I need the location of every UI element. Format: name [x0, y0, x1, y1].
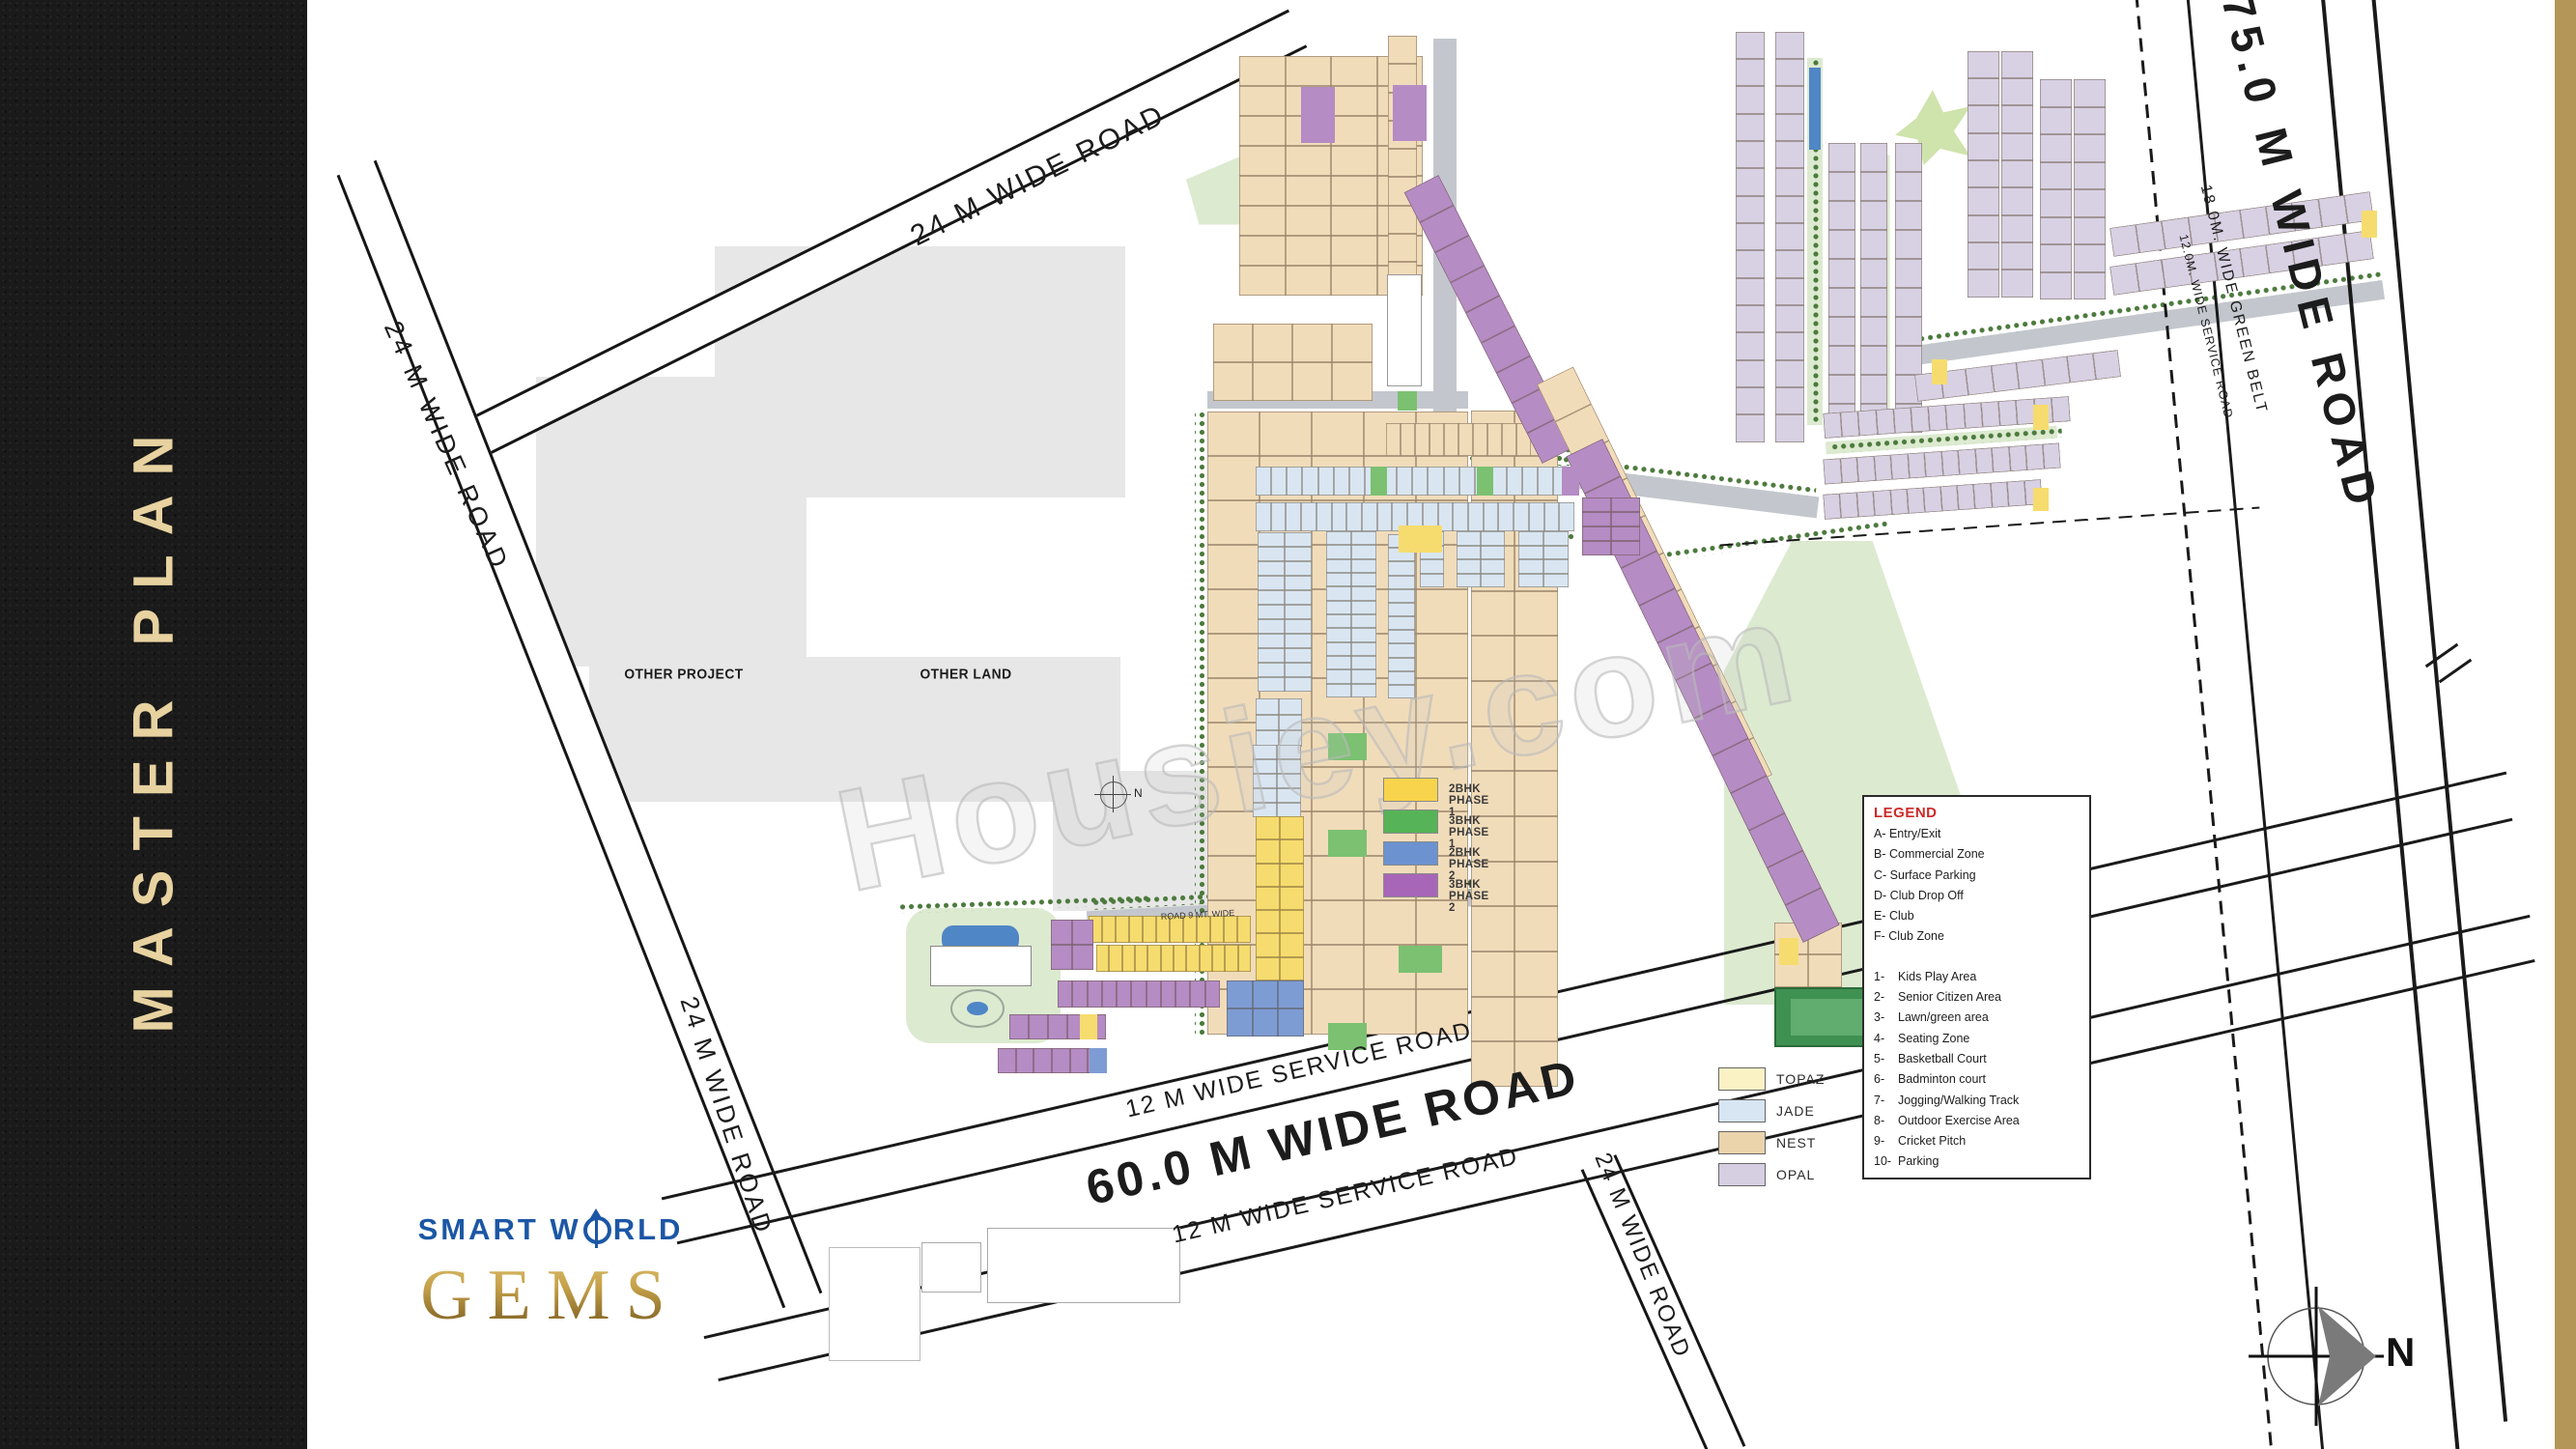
- plot-cell: [2040, 189, 2072, 217]
- smart-world-text-right: RLD: [613, 1212, 684, 1247]
- plot-cell: [1514, 997, 1558, 1042]
- plot-cell: [1207, 412, 1260, 456]
- plot-cell: [1210, 916, 1224, 943]
- plot-cell: [1420, 574, 1444, 588]
- plot-cell: [2016, 399, 2035, 425]
- page-title: MASTER PLAN: [122, 416, 186, 1034]
- plot-cell: [1736, 414, 1765, 441]
- plot-cell: [2067, 353, 2096, 383]
- plot-cell: [2042, 442, 2060, 469]
- phase-1-3bhk-swatch: [1383, 810, 1438, 834]
- plot-cell: [1736, 360, 1765, 387]
- opal-label: OPAL: [1776, 1167, 1815, 1182]
- plot-cell: [1285, 648, 1312, 663]
- plot-cell: [1346, 502, 1362, 531]
- plot-cell: [1058, 980, 1072, 1008]
- plot-cell: [1122, 945, 1135, 972]
- mini-compass-ring: [1100, 781, 1127, 809]
- plot-cell: [1326, 545, 1351, 558]
- plot-cell: [1147, 945, 1160, 972]
- plot-cell: [1331, 86, 1377, 116]
- legend-item: 8- Outdoor Exercise Area: [1874, 1111, 2089, 1131]
- plot-cell: [1286, 56, 1332, 86]
- plot-cluster: [1227, 980, 1304, 1037]
- plot-cell: [1457, 531, 1481, 546]
- plot-cell: [1205, 980, 1220, 1008]
- plot-cell: [2040, 244, 2072, 272]
- plot-cell: [1146, 980, 1161, 1008]
- plot-cell: [1998, 400, 2018, 426]
- plot-cell: [2074, 272, 2106, 300]
- plot-cell: [1923, 486, 1941, 512]
- legend-box: LEGEND A- Entry/ExitB- Commercial ZoneC-…: [1862, 795, 2091, 1179]
- map-area: [1301, 87, 1335, 143]
- plot-cell: [1351, 531, 1376, 545]
- plot-cell: [1280, 933, 1304, 956]
- plot-cell: [1736, 305, 1765, 332]
- plot-cell: [1907, 452, 1925, 478]
- map-line: [2439, 658, 2472, 682]
- plot-cell: [1967, 160, 1999, 187]
- plot-cell: [1775, 141, 1804, 168]
- map-area: [1080, 1014, 1097, 1039]
- plot-cell: [1285, 576, 1312, 590]
- plot-cell: [1416, 589, 1468, 634]
- plot-cluster: [1457, 531, 1505, 587]
- plot-cell: [2074, 217, 2106, 245]
- legend-item: 5- Basketball Court: [1874, 1049, 2089, 1069]
- plot-cluster: [1256, 467, 1570, 496]
- plot-cell: [1207, 500, 1260, 545]
- phase-2-2bhk-swatch: [1383, 841, 1438, 866]
- plot-cell: [1459, 467, 1475, 496]
- map-area: [1477, 467, 1493, 496]
- plot-cell: [1502, 423, 1516, 456]
- plot-cell: [1331, 206, 1377, 236]
- plot-cell: [1207, 634, 1260, 678]
- plot-cell: [1991, 446, 2009, 472]
- plot-cell: [1895, 288, 1922, 317]
- plot-cluster: [1096, 945, 1251, 972]
- plot-cell: [1430, 423, 1444, 456]
- gems-wordmark: GEMS: [406, 1255, 695, 1337]
- map-line: [2425, 642, 2458, 667]
- plot-cell: [1514, 952, 1558, 997]
- plot-cell: [2001, 78, 2033, 105]
- map-area: [1562, 467, 1579, 496]
- plot-cluster: [2001, 51, 2033, 298]
- plot-cell: [1471, 997, 1514, 1042]
- plot-cell: [1736, 387, 1765, 414]
- phase-1-2bhk-label: 2BHK PHASE 1: [1449, 783, 1489, 818]
- jade-swatch: [1718, 1099, 1766, 1122]
- plot-cell: [1286, 206, 1332, 236]
- other-project-label: OTHER PROJECT: [624, 667, 743, 683]
- plot-cell: [1481, 574, 1505, 588]
- plot-cell: [1253, 362, 1292, 401]
- plot-cell: [1498, 502, 1514, 531]
- plot-cell: [1213, 362, 1253, 401]
- plot-cell: [1072, 945, 1093, 970]
- plot-cell: [2001, 215, 2033, 242]
- plot-cell: [1351, 545, 1376, 558]
- plot-cell: [1911, 406, 1930, 432]
- plot-cell: [1736, 332, 1765, 359]
- plot-cell: [1207, 545, 1260, 589]
- plot-cell: [1828, 143, 1855, 172]
- plot-cell: [1420, 559, 1444, 574]
- plot-cell: [1828, 375, 1855, 404]
- plot-cell: [1253, 324, 1292, 362]
- plot-cell: [1088, 980, 1102, 1008]
- plot-cell: [1860, 288, 1887, 317]
- plot-cell: [1286, 176, 1332, 206]
- plot-cell: [1582, 497, 1611, 512]
- plot-cell: [1775, 250, 1804, 277]
- legend-item: 3- Lawn/green area: [1874, 1008, 2089, 1028]
- plot-cell: [1428, 467, 1443, 496]
- map-area: [967, 1002, 988, 1015]
- plot-cell: [1227, 1009, 1253, 1037]
- plot-cell: [1207, 456, 1260, 500]
- plot-cell: [1481, 531, 1505, 546]
- legend-item: 4- Seating Zone: [1874, 1029, 2089, 1049]
- plot-cell: [1991, 362, 2020, 392]
- plot-cell: [1238, 945, 1251, 972]
- legend-item: B- Commercial Zone: [1874, 844, 2089, 865]
- plot-cell: [1225, 945, 1237, 972]
- plot-cell: [1364, 989, 1416, 1034]
- plot-cell: [1253, 1009, 1279, 1037]
- plot-cell: [1285, 561, 1312, 576]
- plot-cell: [1332, 362, 1372, 401]
- plot-cell: [1285, 590, 1312, 605]
- plot-cell: [1860, 346, 1887, 375]
- plot-cell: [1775, 196, 1804, 223]
- plot-cell: [1227, 980, 1253, 1009]
- plot-cell: [1973, 483, 1992, 509]
- plot-cell: [1967, 51, 1999, 78]
- plot-cell: [1856, 491, 1875, 517]
- plot-cell: [1736, 250, 1765, 277]
- phase-2-3bhk-label: 3BHK PHASE 2: [1449, 879, 1489, 914]
- plot-cell: [1543, 574, 1569, 588]
- plot-cell: [1468, 502, 1484, 531]
- plot-cell: [998, 1048, 1016, 1073]
- legend-item: 7- Jogging/Walking Track: [1874, 1091, 2089, 1111]
- plot-cell: [1611, 541, 1640, 555]
- compass-graphic: [2229, 1269, 2403, 1443]
- plot-cell: [1397, 467, 1412, 496]
- plot-cell: [1326, 573, 1351, 586]
- plot-cell: [1386, 423, 1401, 456]
- plot-cell: [1873, 455, 1891, 481]
- plot-cell: [1351, 573, 1376, 586]
- plot-cell: [1239, 116, 1286, 146]
- plot-cell: [1258, 648, 1285, 663]
- plot-cell: [1895, 230, 1922, 259]
- phase-1-2bhk-swatch: [1383, 778, 1438, 802]
- legend-item: 10- Parking: [1874, 1151, 2089, 1172]
- plot-cell: [1388, 603, 1415, 616]
- opal-swatch: [1718, 1163, 1766, 1186]
- plot-cell: [1280, 839, 1304, 863]
- plot-cell: [1857, 410, 1877, 436]
- plot-cell: [1285, 532, 1312, 547]
- plot-cluster: [2074, 79, 2106, 299]
- plot-cluster: [1518, 531, 1569, 587]
- plot-cell: [1823, 412, 1842, 439]
- plot-cell: [1828, 172, 1855, 201]
- side-panel: MASTER PLAN: [0, 0, 307, 1449]
- plot-cell: [1775, 168, 1804, 195]
- plot-cell: [1514, 862, 1558, 907]
- plot-cell: [1332, 324, 1372, 362]
- plot-cell: [2240, 244, 2270, 276]
- plot-cell: [1895, 172, 1922, 201]
- plot-cell: [1239, 266, 1286, 296]
- plot-cell: [1009, 1014, 1029, 1039]
- plot-cell: [1471, 952, 1514, 997]
- plot-cell: [1260, 412, 1312, 456]
- plot-cell: [2074, 189, 2106, 217]
- plot-cell: [1514, 502, 1529, 531]
- plot-cell: [1388, 561, 1415, 575]
- plot-cell: [2318, 195, 2348, 227]
- plot-cell: [1224, 916, 1237, 943]
- plot-cell: [1823, 458, 1841, 484]
- plot-cell: [1514, 906, 1558, 952]
- plot-cell: [1458, 423, 1473, 456]
- plot-cell: [1312, 856, 1364, 900]
- plot-cell: [1331, 116, 1377, 146]
- plot-cell: [1507, 467, 1522, 496]
- plot-cell: [1611, 526, 1640, 541]
- plot-cell: [1828, 346, 1855, 375]
- plot-cell: [1256, 887, 1280, 910]
- plot-cell: [1828, 317, 1855, 346]
- map-area: [829, 1247, 920, 1361]
- plot-cell: [1258, 619, 1285, 634]
- plot-cell: [1351, 586, 1376, 600]
- smart-world-wordmark: SMART WRLD: [406, 1212, 695, 1247]
- plot-cluster: [2040, 79, 2072, 299]
- plot-cell: [1775, 387, 1804, 414]
- plot-cell: [1161, 980, 1175, 1008]
- map-area: [536, 377, 807, 667]
- plot-cell: [1487, 423, 1502, 456]
- plot-cell: [1823, 494, 1841, 520]
- plot-cluster: [1058, 980, 1220, 1008]
- plot-cell: [1239, 176, 1286, 206]
- plot-cell: [1860, 317, 1887, 346]
- plot-cell: [1457, 546, 1481, 560]
- plot-cell: [1518, 574, 1543, 588]
- plot-cell: [2008, 445, 2026, 471]
- plot-cell: [1775, 278, 1804, 305]
- mini-compass-north-label: N: [1134, 786, 1143, 800]
- plot-cell: [1256, 502, 1271, 531]
- plot-cell: [1326, 559, 1351, 573]
- plot-cell: [1016, 1048, 1034, 1073]
- plot-cell: [2074, 162, 2106, 190]
- map-area: [930, 946, 1032, 986]
- plot-cell: [1967, 187, 1999, 214]
- plot-cell: [1301, 502, 1316, 531]
- plot-cell: [1873, 490, 1891, 516]
- plot-cell: [1256, 910, 1280, 933]
- plot-cell: [1388, 576, 1415, 589]
- plot-cell: [1271, 467, 1287, 496]
- plot-cell: [2074, 107, 2106, 135]
- plot-cell: [1543, 546, 1569, 560]
- plot-cell: [1538, 467, 1553, 496]
- plot-cell: [1072, 980, 1087, 1008]
- legend-item: 6- Badminton court: [1874, 1069, 2089, 1090]
- legend-item: E- Club: [1874, 906, 2089, 926]
- map-area: [1371, 467, 1387, 496]
- plot-cell: [2040, 162, 2072, 190]
- plot-cell: [1253, 980, 1279, 1009]
- plot-cell: [1318, 467, 1334, 496]
- plot-cell: [1258, 605, 1285, 619]
- site-map: Housiey.com OTHER PROJECT OTHER LAND ROA…: [0, 0, 2576, 1449]
- legend-item: A- Entry/Exit: [1874, 824, 2089, 844]
- plot-cell: [1518, 531, 1543, 546]
- plot-cell: [1412, 467, 1428, 496]
- plot-cell: [1963, 402, 1982, 428]
- plot-cell: [1736, 86, 1765, 113]
- plot-cell: [2074, 79, 2106, 107]
- plot-cell: [2074, 244, 2106, 272]
- plot-cluster: [1051, 920, 1093, 970]
- nest-label: NEST: [1776, 1135, 1816, 1151]
- plot-cell: [1582, 512, 1611, 526]
- plot-cell: [2040, 79, 2072, 107]
- plot-cell: [1377, 502, 1393, 531]
- plot-cell: [1828, 288, 1855, 317]
- legend-item: 1- Kids Play Area: [1874, 967, 2089, 987]
- plot-cell: [1212, 945, 1225, 972]
- plot-cell: [1518, 546, 1543, 560]
- phase-1-3bhk-label: 3BHK PHASE 1: [1449, 815, 1489, 850]
- map-area: [987, 1228, 1180, 1303]
- plot-cell: [1312, 900, 1364, 945]
- plot-cell: [1326, 614, 1351, 628]
- plot-cell: [1401, 423, 1415, 456]
- plot-cell: [1388, 234, 1417, 262]
- plot-cell: [1736, 59, 1765, 86]
- plot-cell: [2042, 356, 2071, 386]
- plot-cell: [1518, 559, 1543, 574]
- plot-cell: [1808, 954, 1842, 986]
- plot-cell: [1186, 945, 1199, 972]
- plot-cell: [1286, 266, 1332, 296]
- legend-item: F- Club Zone: [1874, 926, 2089, 947]
- plot-cell: [1131, 980, 1146, 1008]
- plot-cell: [1736, 168, 1765, 195]
- plot-cell: [1292, 324, 1332, 362]
- plot-cell: [1611, 497, 1640, 512]
- plot-cell: [1256, 864, 1280, 887]
- plot-cell: [1775, 305, 1804, 332]
- phase-2-2bhk-label: 2BHK PHASE 2: [1449, 847, 1489, 882]
- plot-cell: [1967, 270, 1999, 297]
- plot-cell: [1481, 546, 1505, 560]
- plot-cell: [1875, 409, 1894, 435]
- plot-cluster: [1823, 479, 2042, 520]
- plot-cluster: [1860, 143, 1887, 433]
- plot-cluster: [1213, 324, 1373, 401]
- plot-cell: [1072, 920, 1093, 945]
- legend-item: 2- Senior Citizen Area: [1874, 987, 2089, 1008]
- plot-cell: [1102, 916, 1116, 943]
- plot-cell: [1775, 114, 1804, 141]
- plot-cell: [1161, 945, 1174, 972]
- plot-cell: [1907, 488, 1925, 514]
- nest-swatch: [1718, 1131, 1766, 1154]
- plot-cell: [1736, 32, 1765, 59]
- map-area: [1399, 526, 1442, 553]
- plot-cell: [1312, 412, 1364, 456]
- plot-cell: [1945, 404, 1965, 430]
- plot-cell: [1828, 259, 1855, 288]
- plot-cell: [1611, 512, 1640, 526]
- plot-cluster: [1967, 51, 1999, 298]
- plot-cell: [1200, 945, 1212, 972]
- plot-cell: [1991, 482, 2009, 508]
- plot-cell: [1775, 332, 1804, 359]
- plot-cell: [1258, 634, 1285, 648]
- plot-cell: [1143, 916, 1156, 943]
- plot-cell: [1481, 559, 1505, 574]
- plot-cell: [2074, 134, 2106, 162]
- plot-cell: [1775, 223, 1804, 250]
- plot-cell: [2016, 359, 2045, 389]
- plot-cell: [1453, 502, 1468, 531]
- legend-number-list: 1- Kids Play Area2- Senior Citizen Area3…: [1874, 967, 2089, 1173]
- topaz-label: TOPAZ: [1776, 1071, 1825, 1087]
- plot-cell: [1957, 484, 1975, 510]
- plot-cell: [1736, 141, 1765, 168]
- map-area: [1932, 359, 1947, 384]
- plot-cell: [1736, 196, 1765, 223]
- map-area: [921, 1242, 981, 1293]
- master-plan-page: Housiey.com OTHER PROJECT OTHER LAND ROA…: [0, 0, 2576, 1449]
- plot-cell: [1890, 453, 1909, 479]
- other-land-label: OTHER LAND: [920, 667, 1011, 683]
- plot-cell: [1351, 614, 1376, 628]
- plot-cell: [2136, 260, 2166, 292]
- plot-cell: [1940, 485, 1959, 511]
- plot-cell: [1349, 467, 1365, 496]
- plot-cell: [1924, 451, 1942, 477]
- plot-cluster: [1582, 497, 1640, 555]
- plot-cell: [1775, 360, 1804, 387]
- map-area: [1398, 391, 1417, 411]
- plot-cell: [1415, 423, 1430, 456]
- plot-cell: [2040, 272, 2072, 300]
- plot-cell: [1239, 236, 1286, 266]
- plot-cell: [1135, 945, 1147, 972]
- plot-cell: [1895, 143, 1922, 172]
- plot-cell: [1051, 920, 1072, 945]
- plot-cell: [1828, 201, 1855, 230]
- plot-cell: [1388, 616, 1415, 630]
- plot-cell: [1334, 467, 1349, 496]
- plot-cell: [1070, 1048, 1089, 1073]
- plot-cell: [1388, 149, 1417, 177]
